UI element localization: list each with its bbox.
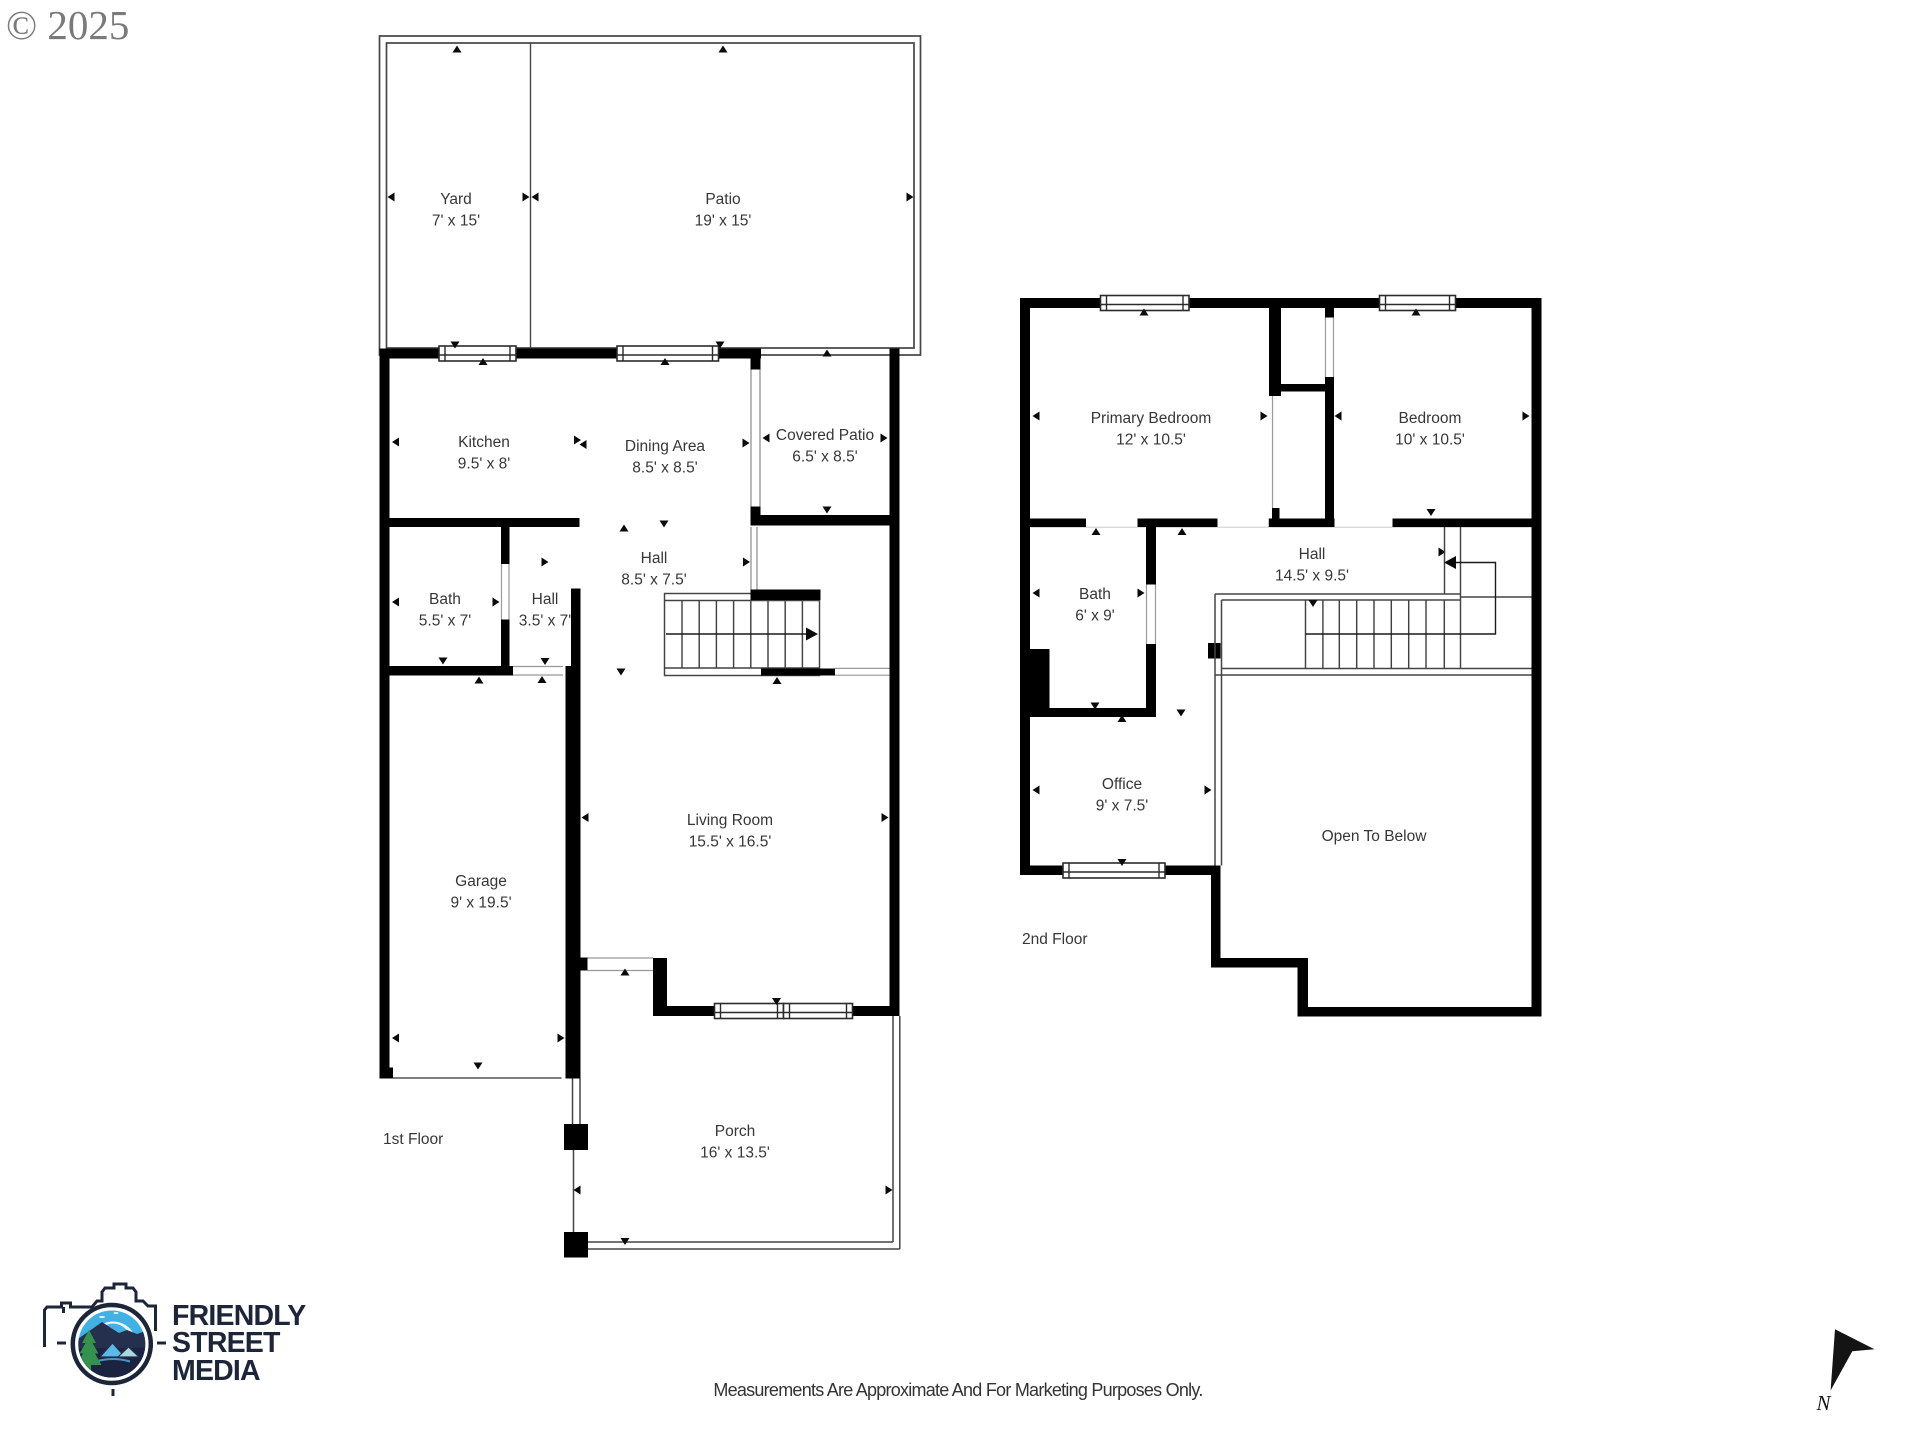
svg-text:3.5' x 7': 3.5' x 7' — [519, 613, 571, 630]
svg-text:6.5' x 8.5': 6.5' x 8.5' — [792, 449, 857, 466]
svg-text:Garage: Garage — [455, 873, 507, 890]
svg-text:Primary Bedroom: Primary Bedroom — [1091, 410, 1212, 427]
svg-text:12' x 10.5': 12' x 10.5' — [1116, 432, 1186, 449]
svg-text:Living Room: Living Room — [687, 812, 773, 829]
svg-text:8.5' x 7.5': 8.5' x 7.5' — [621, 572, 686, 589]
svg-text:14.5' x 9.5': 14.5' x 9.5' — [1275, 568, 1349, 585]
svg-text:9.5' x 8': 9.5' x 8' — [458, 456, 510, 473]
svg-text:5.5' x 7': 5.5' x 7' — [419, 613, 471, 630]
svg-text:15.5' x 16.5': 15.5' x 16.5' — [689, 834, 772, 851]
svg-text:16' x 13.5': 16' x 13.5' — [700, 1145, 770, 1162]
svg-text:10' x 10.5': 10' x 10.5' — [1395, 432, 1465, 449]
svg-text:Bath: Bath — [1079, 586, 1111, 603]
svg-text:Dining Area: Dining Area — [625, 438, 706, 455]
svg-text:© 2025: © 2025 — [6, 2, 129, 48]
svg-text:Bath: Bath — [429, 591, 461, 608]
svg-text:6' x 9': 6' x 9' — [1075, 608, 1115, 625]
svg-text:Yard: Yard — [440, 191, 472, 208]
svg-text:9' x 19.5': 9' x 19.5' — [450, 895, 511, 912]
svg-text:2nd Floor: 2nd Floor — [1022, 931, 1087, 948]
svg-text:Open To Below: Open To Below — [1322, 828, 1428, 845]
svg-text:9' x 7.5': 9' x 7.5' — [1096, 798, 1148, 815]
svg-text:19' x 15': 19' x 15' — [695, 213, 752, 230]
svg-text:Kitchen: Kitchen — [458, 434, 510, 451]
svg-text:Bedroom: Bedroom — [1399, 410, 1462, 427]
svg-text:Patio: Patio — [705, 191, 740, 208]
svg-text:8.5' x 8.5': 8.5' x 8.5' — [632, 460, 697, 477]
svg-text:Hall: Hall — [1299, 546, 1326, 563]
svg-text:Measurements Are Approximate A: Measurements Are Approximate And For Mar… — [713, 1380, 1202, 1400]
svg-text:7' x 15': 7' x 15' — [432, 213, 480, 230]
svg-text:MEDIA: MEDIA — [172, 1355, 260, 1387]
svg-text:N: N — [1816, 1391, 1832, 1415]
svg-text:Hall: Hall — [532, 591, 559, 608]
svg-text:Hall: Hall — [641, 550, 668, 567]
svg-text:1st Floor: 1st Floor — [383, 1131, 443, 1148]
svg-text:Covered Patio: Covered Patio — [776, 427, 874, 444]
svg-text:Office: Office — [1102, 776, 1142, 793]
svg-text:Porch: Porch — [715, 1123, 756, 1140]
